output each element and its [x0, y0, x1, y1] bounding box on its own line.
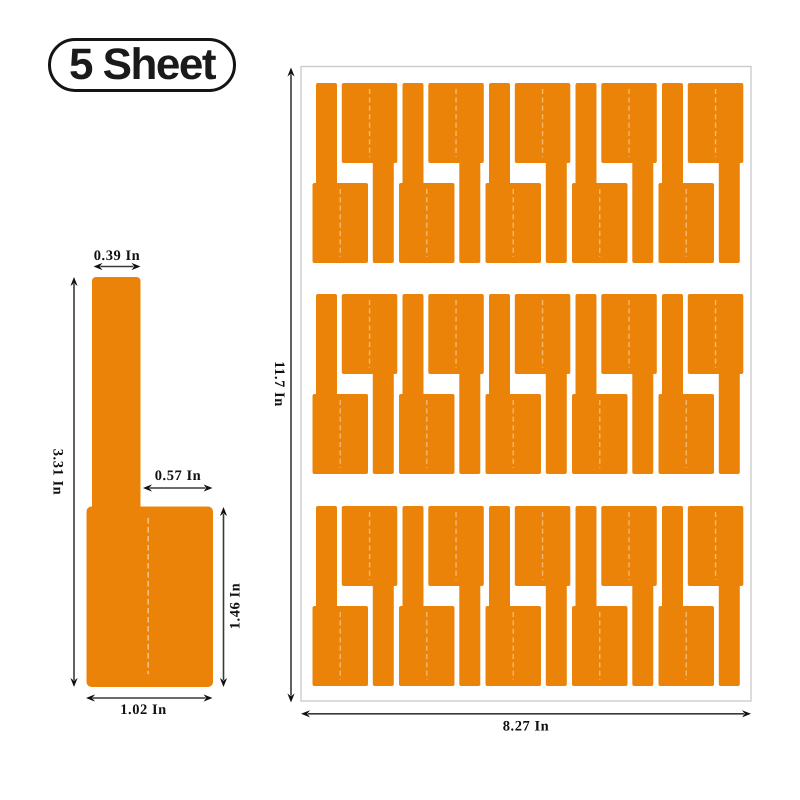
svg-text:1.46 In: 1.46 In [228, 583, 244, 630]
svg-text:1.02 In: 1.02 In [120, 702, 167, 718]
svg-text:0.57 In: 0.57 In [155, 468, 202, 484]
svg-text:8.27 In: 8.27 In [503, 718, 550, 734]
svg-text:11.7 In: 11.7 In [271, 361, 287, 407]
svg-text:0.39 In: 0.39 In [94, 248, 141, 264]
svg-text:3.31 In: 3.31 In [50, 449, 66, 496]
